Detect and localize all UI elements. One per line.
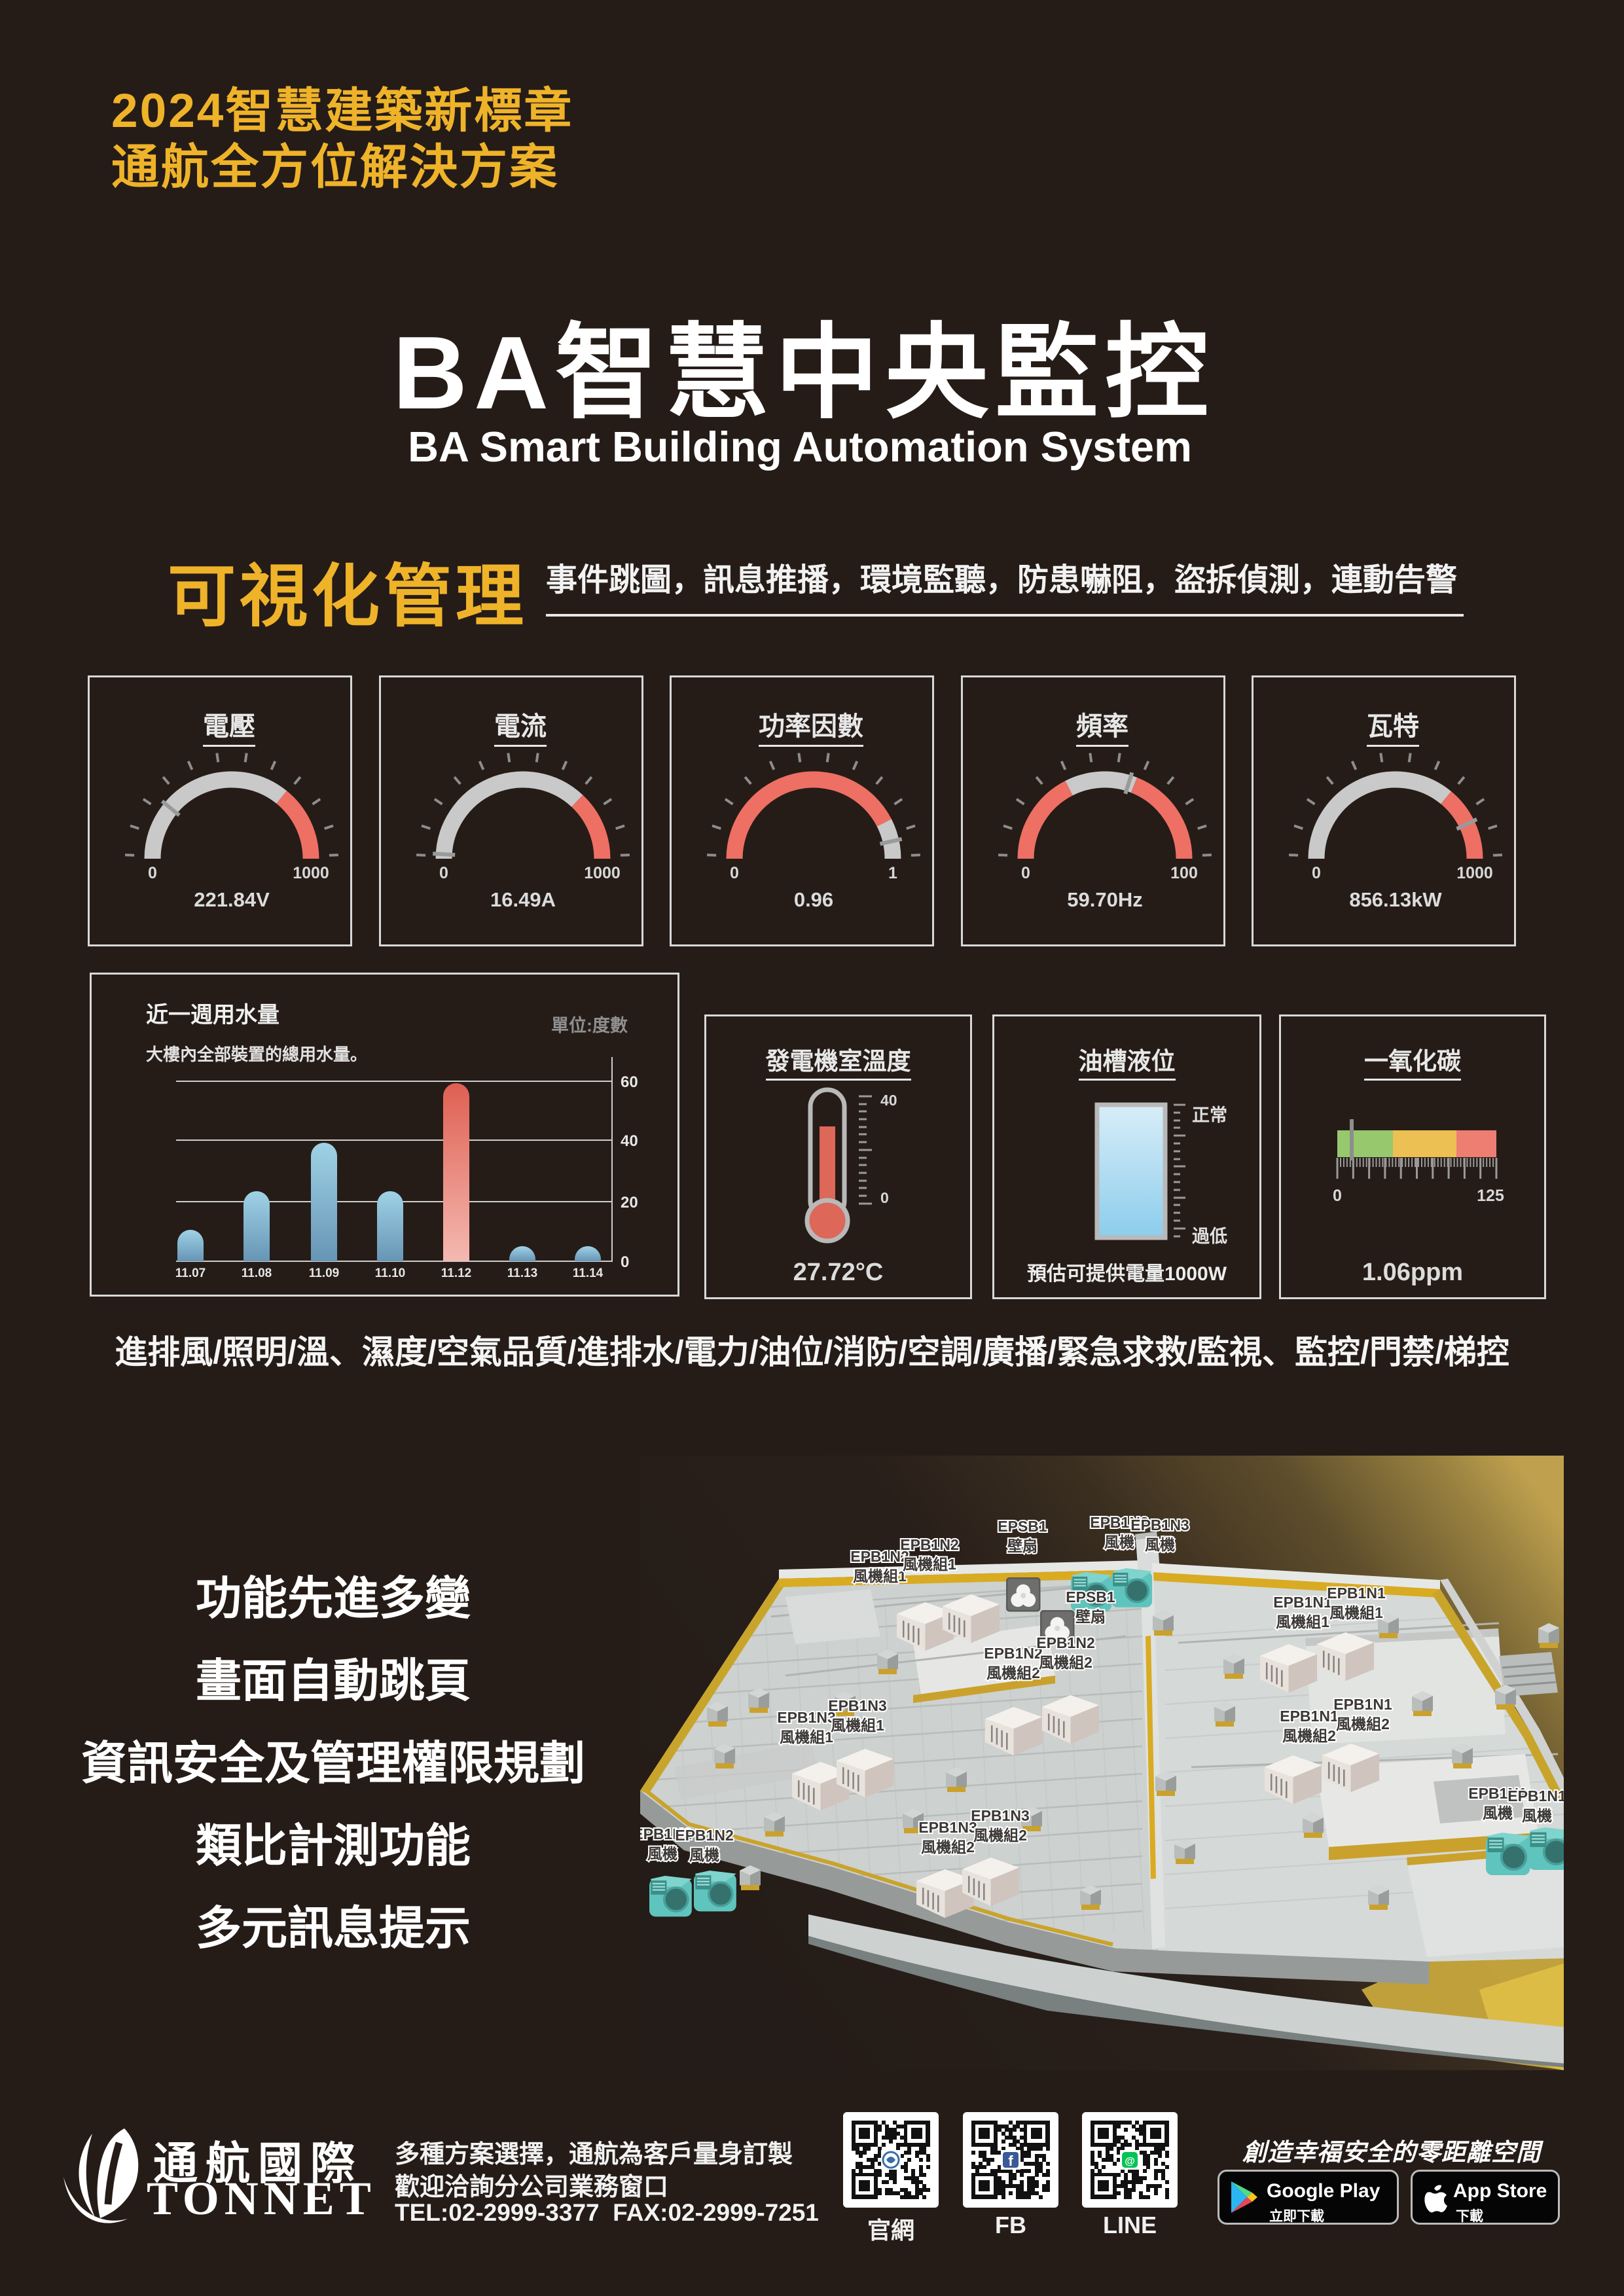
- svg-text:EPB1N1: EPB1N1: [1327, 1585, 1386, 1602]
- svg-text:11.10: 11.10: [375, 1266, 406, 1280]
- svg-text:EPSB1: EPSB1: [1066, 1588, 1115, 1605]
- svg-text:@: @: [1125, 2156, 1135, 2167]
- svg-text:EPB1N2: EPB1N2: [675, 1827, 733, 1844]
- svg-text:壁扇: 壁扇: [1075, 1608, 1106, 1625]
- svg-text:20: 20: [621, 1194, 638, 1211]
- svg-text:EPB1N3: EPB1N3: [828, 1697, 886, 1714]
- svg-text:1000: 1000: [293, 864, 329, 882]
- svg-text:風機組2: 風機組2: [1282, 1727, 1336, 1744]
- svg-text:EPSB1: EPSB1: [998, 1518, 1047, 1535]
- svg-text:風機組1: 風機組1: [780, 1729, 833, 1746]
- svg-text:風機組1: 風機組1: [1329, 1604, 1383, 1621]
- svg-text:1000: 1000: [1456, 864, 1493, 882]
- svg-text:風機組2: 風機組2: [986, 1664, 1040, 1681]
- svg-text:0: 0: [1312, 864, 1321, 882]
- svg-text:11.13: 11.13: [507, 1266, 538, 1280]
- svg-text:EPB1N3: EPB1N3: [777, 1709, 835, 1726]
- svg-text:11.12: 11.12: [441, 1266, 472, 1280]
- svg-text:EPB1N1: EPB1N1: [1280, 1708, 1339, 1725]
- svg-text:1000: 1000: [584, 864, 621, 882]
- svg-text:0: 0: [621, 1253, 629, 1271]
- svg-text:0: 0: [730, 864, 739, 882]
- svg-text:風機: 風機: [647, 1845, 677, 1862]
- svg-text:0: 0: [148, 864, 157, 882]
- svg-text:EPB1N1: EPB1N1: [1333, 1696, 1392, 1713]
- svg-text:風機組2: 風機組2: [973, 1827, 1027, 1844]
- svg-text:風機組2: 風機組2: [921, 1839, 975, 1856]
- svg-text:風機: 風機: [689, 1846, 719, 1863]
- svg-text:風機: 風機: [1522, 1807, 1552, 1824]
- svg-text:40: 40: [880, 1092, 897, 1109]
- svg-text:11.09: 11.09: [309, 1266, 340, 1280]
- svg-text:0: 0: [1333, 1187, 1342, 1205]
- svg-text:40: 40: [621, 1132, 638, 1150]
- svg-text:EPB1N1: EPB1N1: [1273, 1594, 1332, 1611]
- svg-text:11.14: 11.14: [573, 1266, 604, 1280]
- svg-text:60: 60: [621, 1073, 638, 1091]
- svg-text:f: f: [1008, 2153, 1013, 2169]
- svg-text:EPB1N3: EPB1N3: [1130, 1516, 1189, 1534]
- svg-text:11.08: 11.08: [242, 1266, 272, 1280]
- svg-text:風機: 風機: [1104, 1534, 1134, 1551]
- svg-text:過低: 過低: [1192, 1227, 1227, 1246]
- svg-text:風機組2: 風機組2: [1039, 1654, 1092, 1671]
- svg-text:100: 100: [1170, 864, 1198, 882]
- svg-text:1: 1: [888, 864, 897, 882]
- svg-text:0: 0: [1021, 864, 1030, 882]
- svg-text:0: 0: [880, 1189, 889, 1206]
- svg-text:風機組1: 風機組1: [831, 1717, 884, 1734]
- svg-text:EPB1N2: EPB1N2: [1036, 1634, 1094, 1651]
- svg-text:EPB1N3: EPB1N3: [918, 1819, 977, 1836]
- svg-text:EPB1N3: EPB1N3: [971, 1807, 1029, 1824]
- svg-text:0: 0: [439, 864, 448, 882]
- svg-text:風機組1: 風機組1: [903, 1556, 956, 1573]
- svg-text:EPB1N2: EPB1N2: [900, 1536, 958, 1553]
- svg-text:11.07: 11.07: [175, 1266, 206, 1280]
- svg-text:風機: 風機: [1483, 1804, 1513, 1821]
- svg-text:125: 125: [1477, 1187, 1504, 1205]
- svg-text:EPB1N2: EPB1N2: [984, 1645, 1042, 1662]
- svg-text:風機組1: 風機組1: [853, 1568, 907, 1585]
- svg-text:EPB1N1: EPB1N1: [1507, 1787, 1564, 1804]
- svg-text:正常: 正常: [1192, 1105, 1227, 1125]
- svg-text:壁扇: 壁扇: [1007, 1537, 1038, 1554]
- svg-text:風機組2: 風機組2: [1336, 1715, 1390, 1732]
- svg-text:風機組1: 風機組1: [1276, 1613, 1329, 1630]
- svg-text:風機: 風機: [1145, 1536, 1175, 1553]
